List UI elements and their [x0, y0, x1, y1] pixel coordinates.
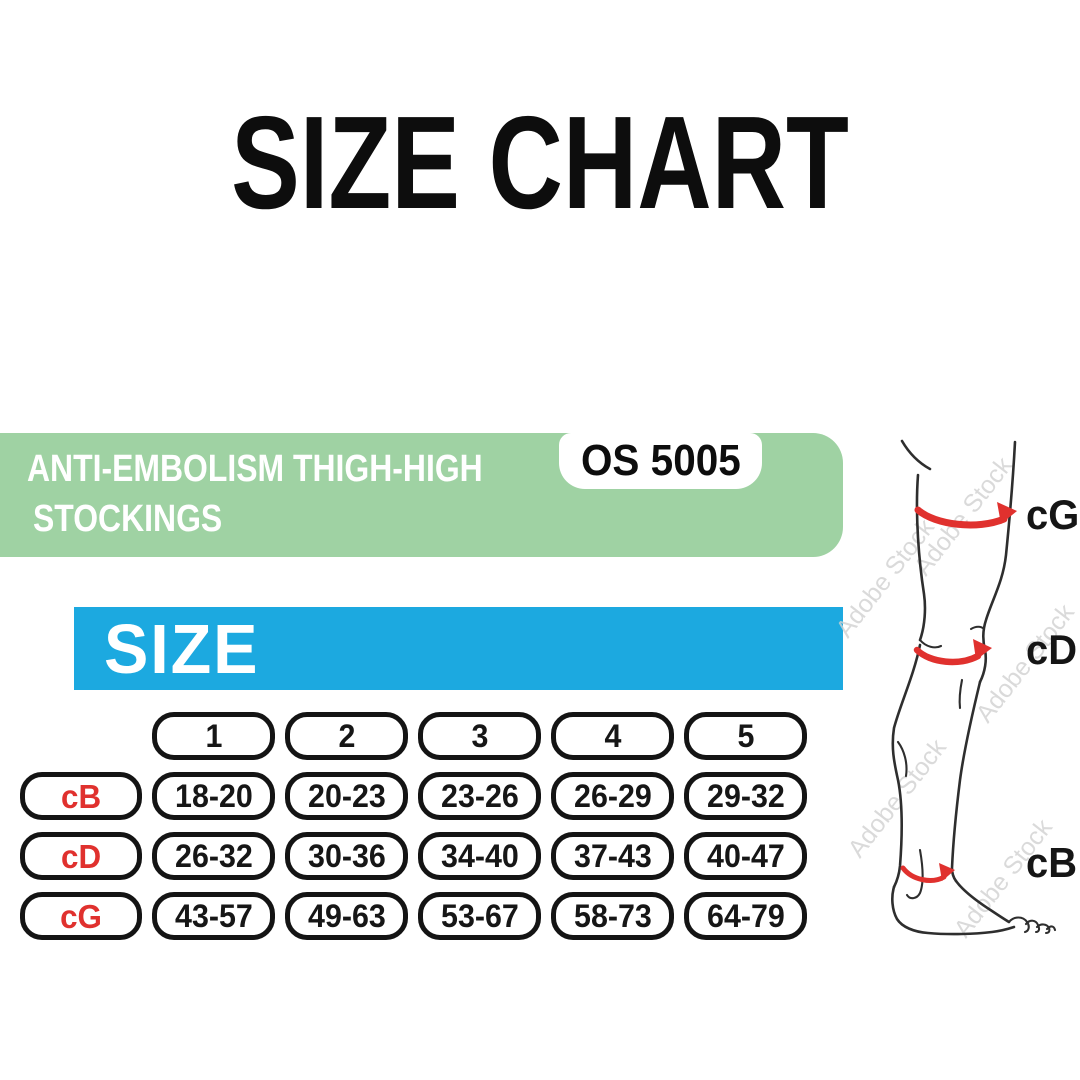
- cell-cG-size2: 49-63: [285, 892, 408, 940]
- cell-cB-size4: 26-29: [551, 772, 674, 820]
- size-column-header-3: 3: [418, 712, 541, 760]
- foot-sole-contour: [892, 887, 1014, 934]
- page-title: SIZE CHART: [0, 97, 1080, 229]
- thigh-back-contour: [917, 475, 925, 640]
- size-chart-page: SIZE CHART ANTI-EMBOLISM THIGH-HIGH STOC…: [0, 0, 1080, 1080]
- cell-cB-size5: 29-32: [684, 772, 807, 820]
- cell-cB-size2: 20-23: [285, 772, 408, 820]
- size-column-header-4: 4: [551, 712, 674, 760]
- cell-cG-size5: 64-79: [684, 892, 807, 940]
- size-table: 1 2 3 4 5 cB 18-20 20-23 23-26 26-29 29-…: [20, 712, 807, 940]
- knee-measure-label: cD: [1026, 629, 1077, 671]
- foot-top-contour: [956, 881, 1009, 922]
- kneecap-crease-line: [971, 627, 984, 629]
- cell-cD-size5: 40-47: [684, 832, 807, 880]
- knee-arrow-cD: [917, 650, 978, 662]
- calf-muscle-line: [898, 742, 907, 776]
- cell-cD-size3: 34-40: [418, 832, 541, 880]
- size-column-header-5: 5: [684, 712, 807, 760]
- toes-outline: [1009, 918, 1055, 934]
- page-title-text: SIZE CHART: [231, 97, 849, 229]
- knee-crease-line: [920, 640, 941, 647]
- cell-cG-size4: 58-73: [551, 892, 674, 940]
- cell-cG-size1: 43-57: [152, 892, 275, 940]
- shin-front-contour: [952, 682, 980, 881]
- table-corner-spacer: [20, 712, 142, 760]
- size-section-header: SIZE: [74, 607, 843, 690]
- cell-cB-size3: 23-26: [418, 772, 541, 820]
- thigh-arrow-cG: [918, 510, 1004, 525]
- product-banner: ANTI-EMBOLISM THIGH-HIGH STOCKINGS OS 50…: [0, 433, 843, 557]
- hip-crease-line: [902, 441, 930, 469]
- thigh-measure-label: cG: [1026, 494, 1079, 536]
- cell-cD-size1: 26-32: [152, 832, 275, 880]
- size-column-header-2: 2: [285, 712, 408, 760]
- cell-cD-size4: 37-43: [551, 832, 674, 880]
- product-name-line1: ANTI-EMBOLISM THIGH-HIGH: [27, 447, 570, 493]
- size-column-header-1: 1: [152, 712, 275, 760]
- product-name-line2: STOCKINGS: [33, 497, 258, 543]
- cell-cG-size3: 53-67: [418, 892, 541, 940]
- ankle-measure-label: cB: [1026, 842, 1077, 884]
- cell-cD-size2: 30-36: [285, 832, 408, 880]
- row-label-cB: cB: [20, 772, 142, 820]
- model-code-badge: OS 5005: [559, 433, 762, 489]
- cell-cB-size1: 18-20: [152, 772, 275, 820]
- leg-measurement-diagram: Adobe Stock Adobe Stock Adobe Stock Adob…: [840, 420, 1080, 980]
- shin-detail-line: [960, 680, 962, 708]
- row-label-cD: cD: [20, 832, 142, 880]
- row-label-cG: cG: [20, 892, 142, 940]
